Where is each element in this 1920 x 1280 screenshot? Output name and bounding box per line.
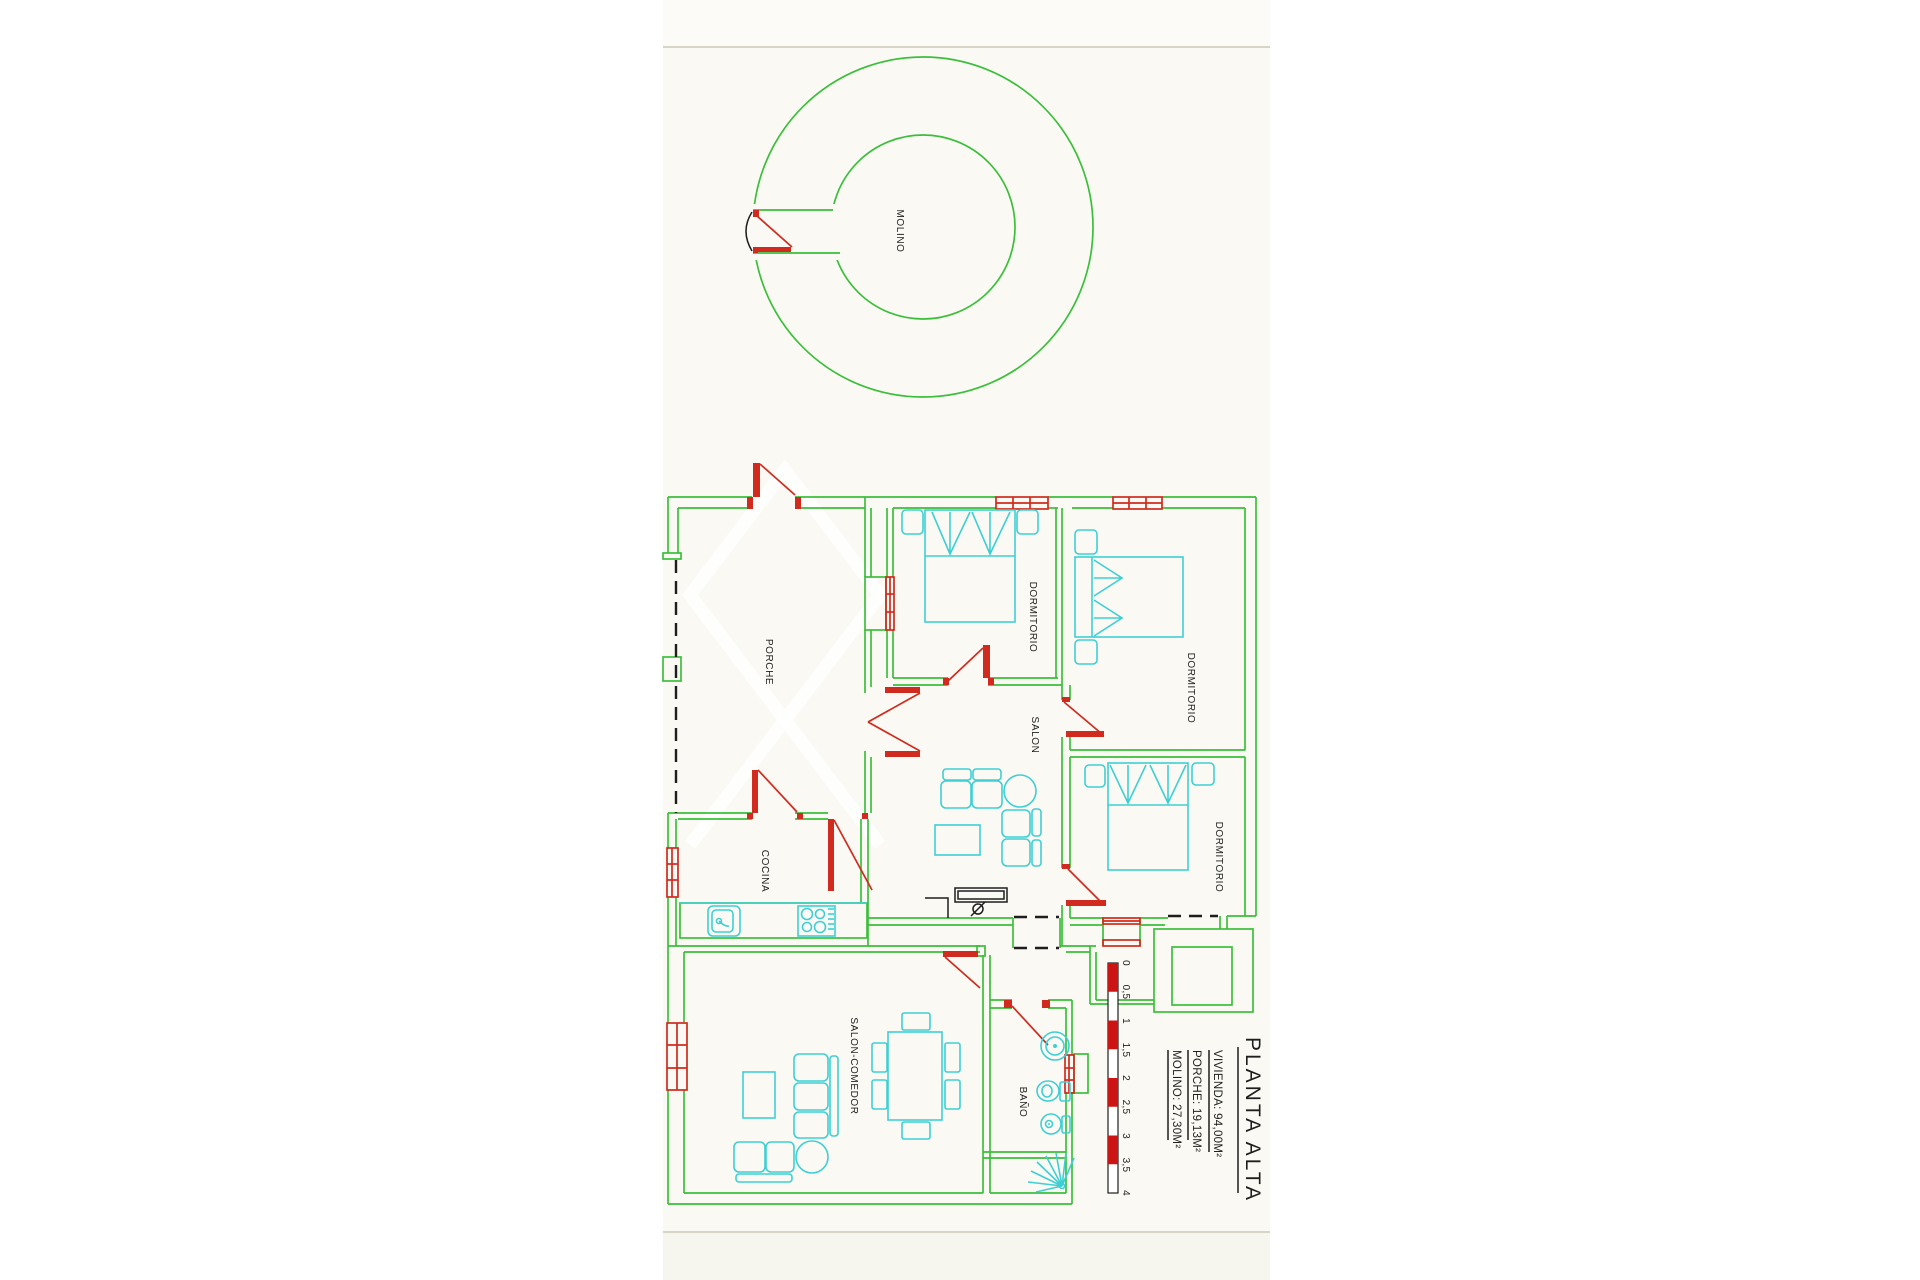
- area-porche: PORCHE: 19,13M²: [1190, 1050, 1202, 1152]
- scale-tick-1: 1: [1120, 1018, 1131, 1024]
- label-molino: MOLINO: [894, 209, 905, 252]
- label-cocina: COCINA: [759, 850, 770, 893]
- label-bano: BAÑO: [1017, 1087, 1030, 1118]
- area-vivienda: VIVIENDA: 94,00M²: [1211, 1050, 1223, 1157]
- plan-title: PLANTA ALTA: [1241, 1037, 1264, 1203]
- scale-tick-0: 0: [1120, 960, 1131, 966]
- drawing-sheet: 0 0,5 1 1,5 2 2,5 3 3,5 4 MOLINO PORCHE …: [0, 0, 1920, 1280]
- label-porche: PORCHE: [763, 639, 774, 685]
- scale-tick-05: 0,5: [1120, 985, 1131, 1000]
- scale-tick-4: 4: [1120, 1190, 1131, 1196]
- label-salon: SALON: [1029, 717, 1040, 754]
- floor-plan-svg: 0 0,5 1 1,5 2 2,5 3 3,5 4 MOLINO PORCHE …: [0, 0, 1920, 1280]
- scale-tick-3: 3: [1120, 1133, 1131, 1139]
- scale-tick-2: 2: [1120, 1075, 1131, 1081]
- scale-tick-15: 1,5: [1120, 1043, 1131, 1058]
- scale-tick-25: 2,5: [1120, 1100, 1131, 1115]
- scale-tick-35: 3,5: [1120, 1158, 1131, 1173]
- area-molino: MOLINO: 27,30M²: [1170, 1050, 1182, 1148]
- label-salon-comedor: SALON-COMEDOR: [848, 1017, 859, 1114]
- label-dormitorio-1: DORMITORIO: [1027, 582, 1038, 653]
- label-dormitorio-2: DORMITORIO: [1185, 653, 1196, 724]
- label-dormitorio-3: DORMITORIO: [1213, 822, 1224, 893]
